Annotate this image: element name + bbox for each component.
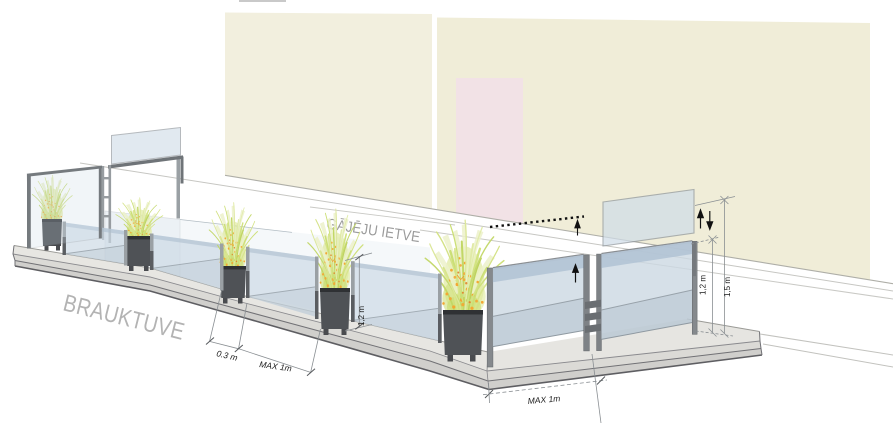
svg-text:1,5 m: 1,5 m [723,277,732,297]
svg-text:1,2 m: 1,2 m [699,275,708,295]
svg-text:1,2 m: 1,2 m [357,306,366,326]
